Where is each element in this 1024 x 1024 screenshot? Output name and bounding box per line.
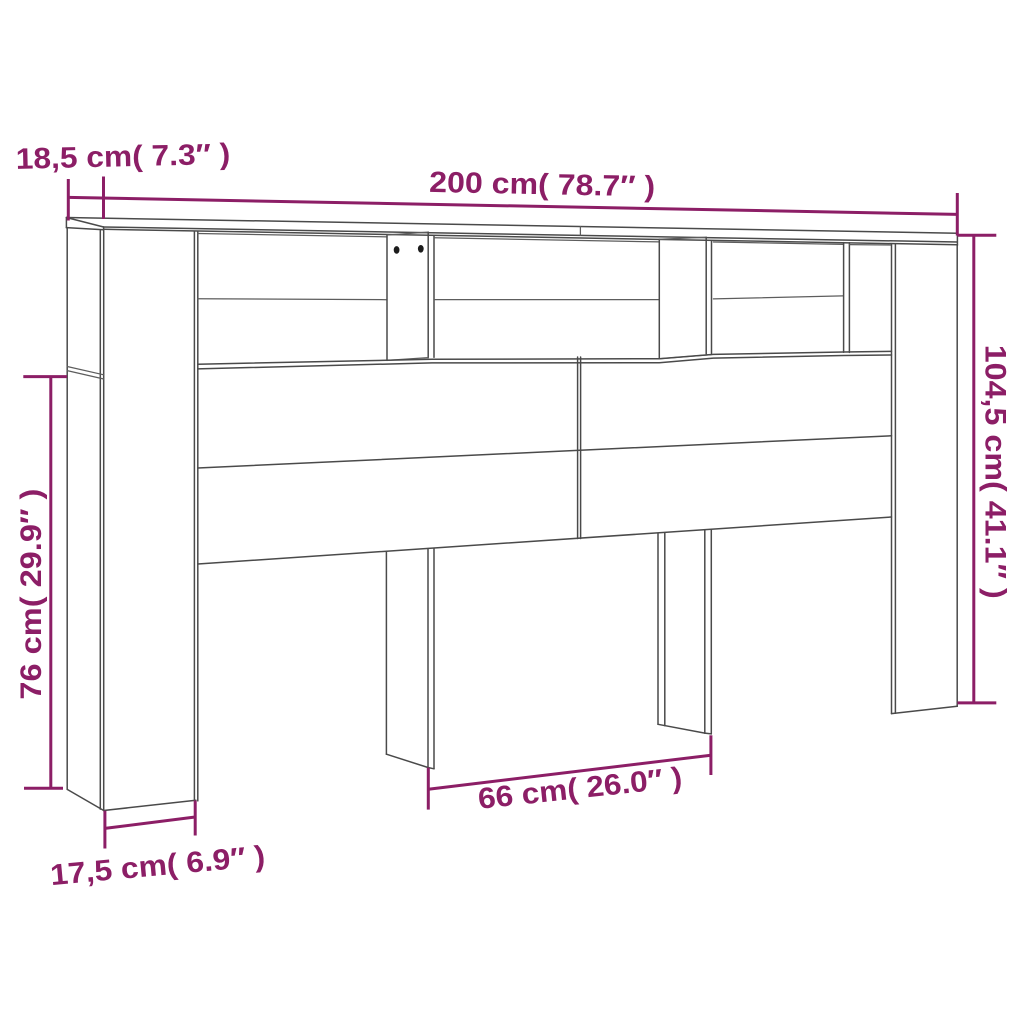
svg-text:200 cm( 78.7″ ): 200 cm( 78.7″ ): [429, 166, 656, 204]
svg-text:18,5 cm( 7.3″ ): 18,5 cm( 7.3″ ): [15, 138, 230, 176]
svg-text:104,5 cm( 41.1″ ): 104,5 cm( 41.1″ ): [979, 345, 1012, 599]
svg-text:76 cm( 29.9″ ): 76 cm( 29.9″ ): [15, 489, 48, 700]
